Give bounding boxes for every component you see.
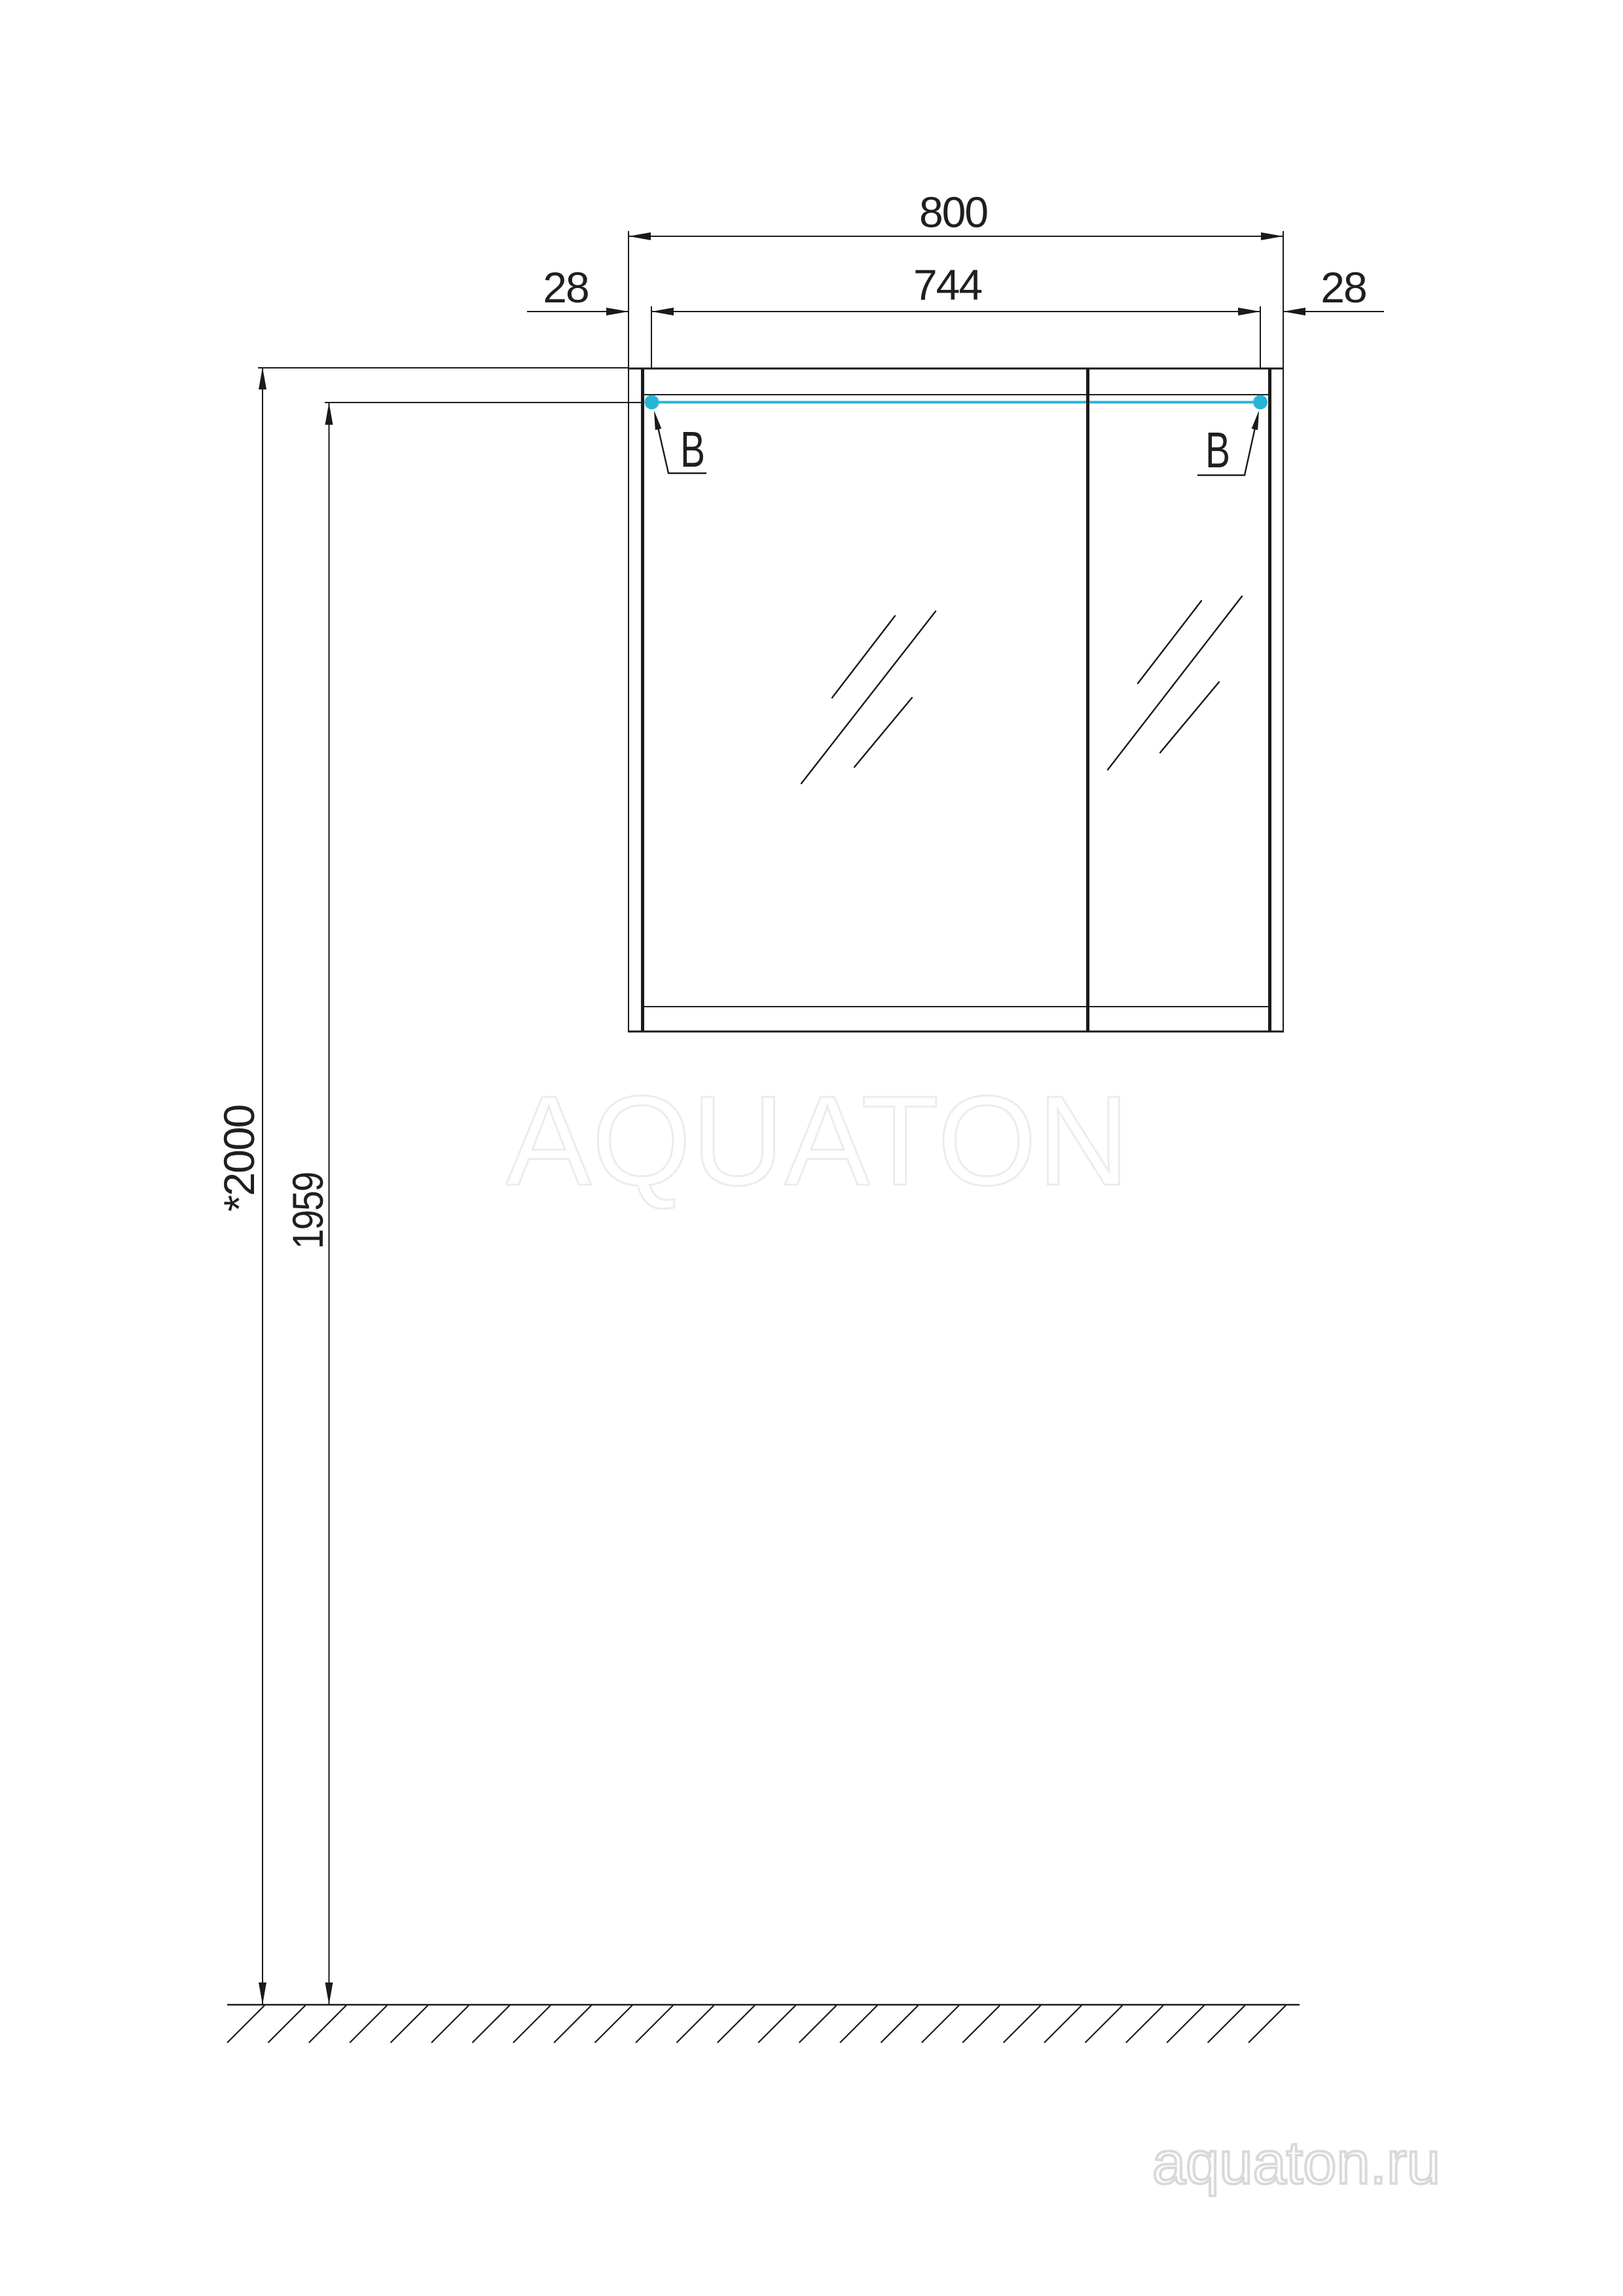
svg-text:*2000: *2000 xyxy=(215,1105,263,1211)
svg-text:800: 800 xyxy=(919,188,987,236)
svg-text:28: 28 xyxy=(1321,263,1366,312)
svg-text:aquaton.ru: aquaton.ru xyxy=(1152,2130,1440,2197)
svg-text:744: 744 xyxy=(913,260,981,309)
svg-text:28: 28 xyxy=(543,263,588,312)
svg-text:B: B xyxy=(1205,422,1230,478)
svg-text:B: B xyxy=(680,422,705,478)
svg-text:AQUATON: AQUATON xyxy=(506,1069,1130,1212)
svg-text:1959: 1959 xyxy=(283,1173,332,1249)
